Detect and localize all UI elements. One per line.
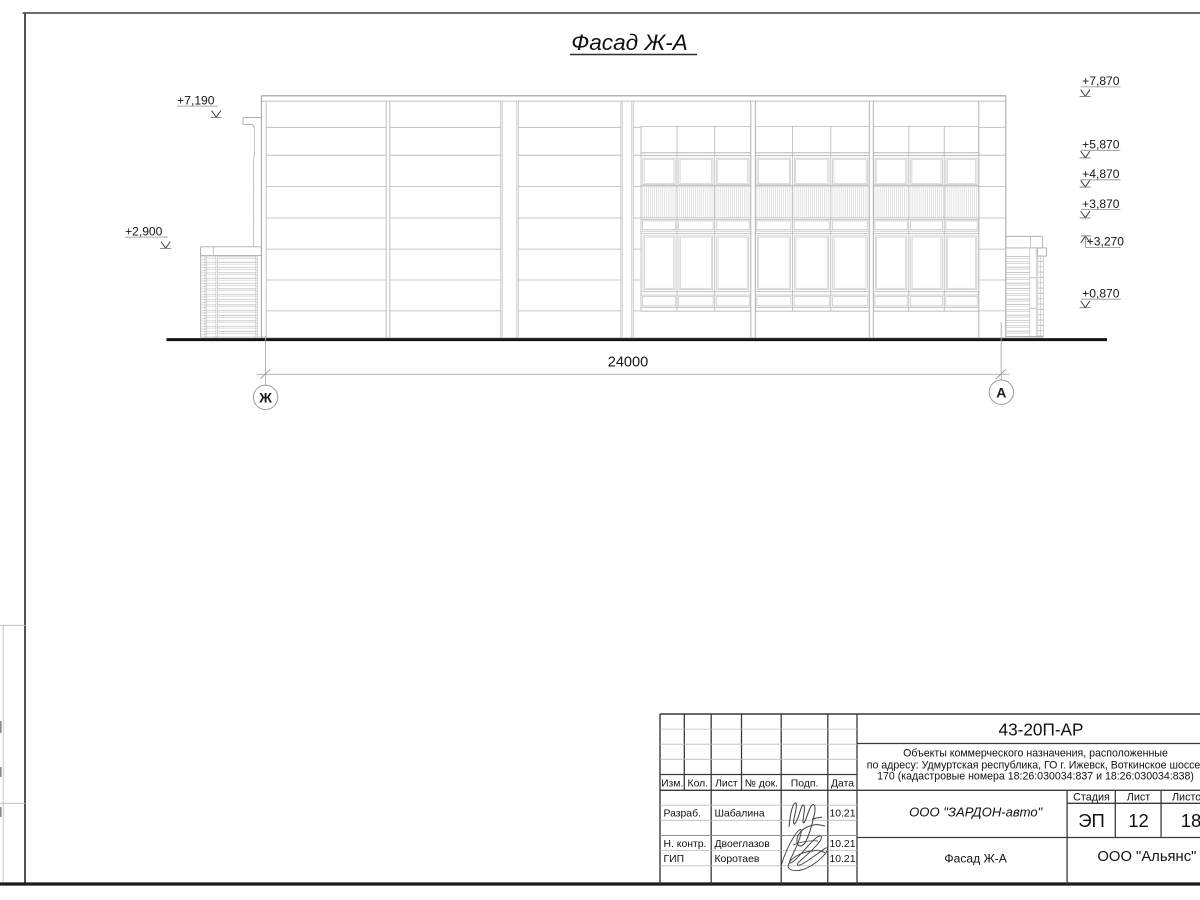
svg-text:ООО "Альянс": ООО "Альянс": [1097, 849, 1196, 865]
svg-text:Подп.: Подп.: [791, 778, 819, 789]
svg-text:+7,870: +7,870: [1082, 74, 1120, 88]
svg-text:+2,900: +2,900: [125, 224, 163, 238]
svg-text:Листов: Листов: [1172, 792, 1200, 804]
svg-text:Н. контр.: Н. контр.: [664, 839, 707, 850]
svg-text:10.21: 10.21: [829, 839, 855, 850]
svg-text:Фасад Ж-А: Фасад Ж-А: [571, 30, 687, 55]
svg-text:24000: 24000: [608, 354, 649, 370]
svg-text:+7,190: +7,190: [177, 93, 215, 107]
svg-text:170 (кадастровые номера 18:26:: 170 (кадастровые номера 18:26:030034:837…: [877, 770, 1194, 782]
svg-text:10.21: 10.21: [829, 809, 855, 820]
svg-text:Разраб.: Разраб.: [664, 808, 701, 820]
svg-text:10.21: 10.21: [829, 854, 855, 865]
svg-text:Стадия: Стадия: [1073, 792, 1110, 804]
svg-text:12: 12: [1128, 810, 1149, 831]
svg-text:Шабалина: Шабалина: [715, 808, 765, 820]
svg-text:Изм.: Изм.: [661, 778, 683, 789]
svg-text:Ж: Ж: [258, 389, 272, 405]
svg-text:+5,870: +5,870: [1082, 137, 1120, 151]
svg-text:ЭП: ЭП: [1078, 810, 1105, 831]
svg-text:+3,870: +3,870: [1082, 197, 1120, 211]
svg-text:Фасад Ж-А: Фасад Ж-А: [944, 852, 1007, 866]
svg-text:Кол.: Кол.: [688, 778, 709, 789]
svg-text:№ док.: № док.: [745, 778, 778, 789]
svg-text:+0,870: +0,870: [1082, 286, 1120, 300]
svg-text:Дата: Дата: [831, 778, 854, 789]
svg-text:+3,270: +3,270: [1087, 235, 1125, 249]
svg-text:Объекты коммерческого назначен: Объекты коммерческого назначения, распол…: [903, 748, 1168, 760]
svg-text:Лист: Лист: [715, 778, 738, 789]
svg-text:43-20П-АР: 43-20П-АР: [999, 720, 1084, 740]
svg-text:+4,870: +4,870: [1082, 167, 1120, 181]
svg-text:Коротаев: Коротаев: [715, 854, 760, 865]
svg-text:Лист: Лист: [1127, 792, 1151, 804]
svg-text:18: 18: [1181, 810, 1200, 831]
svg-text:ООО "ЗАРДОН-авто": ООО "ЗАРДОН-авто": [909, 804, 1044, 819]
svg-text:Двоеглазов: Двоеглазов: [715, 839, 771, 850]
svg-text:ГИП: ГИП: [664, 854, 685, 865]
svg-text:А: А: [996, 384, 1006, 400]
